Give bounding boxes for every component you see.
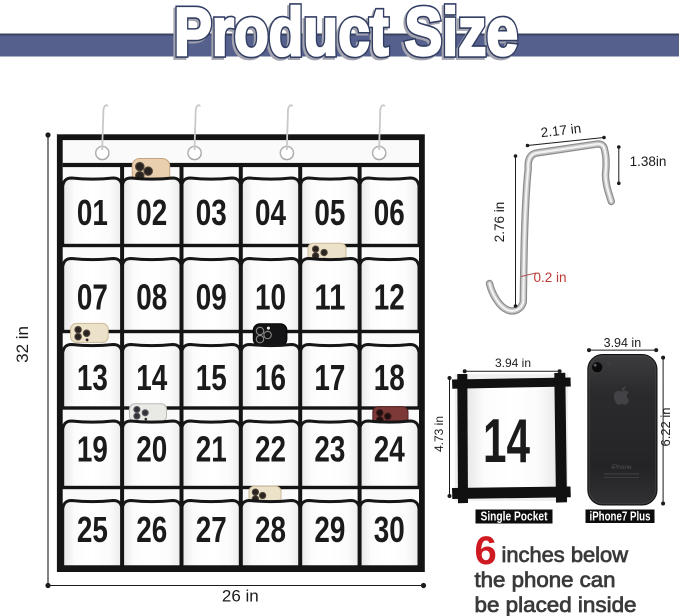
svg-text:18: 18	[374, 357, 405, 398]
svg-text:2.76 in: 2.76 in	[492, 202, 507, 243]
svg-text:14: 14	[483, 407, 530, 476]
svg-text:17: 17	[314, 357, 345, 398]
svg-text:Product Size: Product Size	[174, 0, 518, 70]
svg-text:02: 02	[136, 192, 167, 233]
svg-text:0.2 in: 0.2 in	[533, 270, 566, 285]
svg-text:6.22 in: 6.22 in	[658, 407, 673, 446]
svg-text:32 in: 32 in	[13, 326, 32, 363]
svg-text:iPhone7 Plus: iPhone7 Plus	[590, 509, 651, 523]
svg-text:25: 25	[77, 509, 108, 550]
svg-text:24: 24	[374, 429, 405, 470]
svg-text:29: 29	[314, 509, 345, 550]
svg-text:21: 21	[196, 429, 227, 470]
svg-text:inches below: inches below	[502, 544, 629, 567]
svg-text:03: 03	[196, 192, 227, 233]
svg-text:be placed inside: be placed inside	[475, 594, 637, 616]
svg-text:26: 26	[136, 509, 167, 550]
svg-text:04: 04	[255, 192, 286, 233]
svg-text:09: 09	[196, 277, 227, 318]
svg-text:4.73 in: 4.73 in	[432, 416, 446, 452]
svg-text:2.17 in: 2.17 in	[540, 121, 582, 140]
svg-text:iPhone: iPhone	[611, 464, 632, 471]
svg-text:30: 30	[374, 509, 405, 550]
svg-text:15: 15	[196, 357, 227, 398]
svg-text:01: 01	[77, 192, 108, 233]
svg-text:3.94 in: 3.94 in	[495, 356, 531, 370]
svg-text:19: 19	[77, 429, 108, 470]
svg-text:the phone can: the phone can	[475, 569, 616, 592]
svg-text:20: 20	[136, 429, 167, 470]
svg-text:26 in: 26 in	[222, 587, 259, 606]
svg-text:22: 22	[255, 429, 286, 470]
svg-text:06: 06	[374, 192, 405, 233]
svg-text:23: 23	[314, 429, 345, 470]
svg-text:07: 07	[77, 277, 108, 318]
svg-text:3.94 in: 3.94 in	[604, 336, 642, 350]
svg-text:27: 27	[196, 509, 227, 550]
svg-text:1.38in: 1.38in	[630, 154, 667, 169]
svg-text:05: 05	[314, 192, 345, 233]
svg-text:6: 6	[475, 529, 497, 573]
svg-text:16: 16	[255, 357, 286, 398]
svg-text:12: 12	[374, 277, 405, 318]
svg-text:13: 13	[77, 357, 108, 398]
svg-text:10: 10	[255, 277, 286, 318]
svg-text:11: 11	[314, 277, 345, 318]
svg-text:08: 08	[136, 277, 167, 318]
svg-text:14: 14	[136, 357, 167, 398]
svg-text:28: 28	[255, 509, 286, 550]
svg-text:Single Pocket: Single Pocket	[481, 510, 549, 524]
